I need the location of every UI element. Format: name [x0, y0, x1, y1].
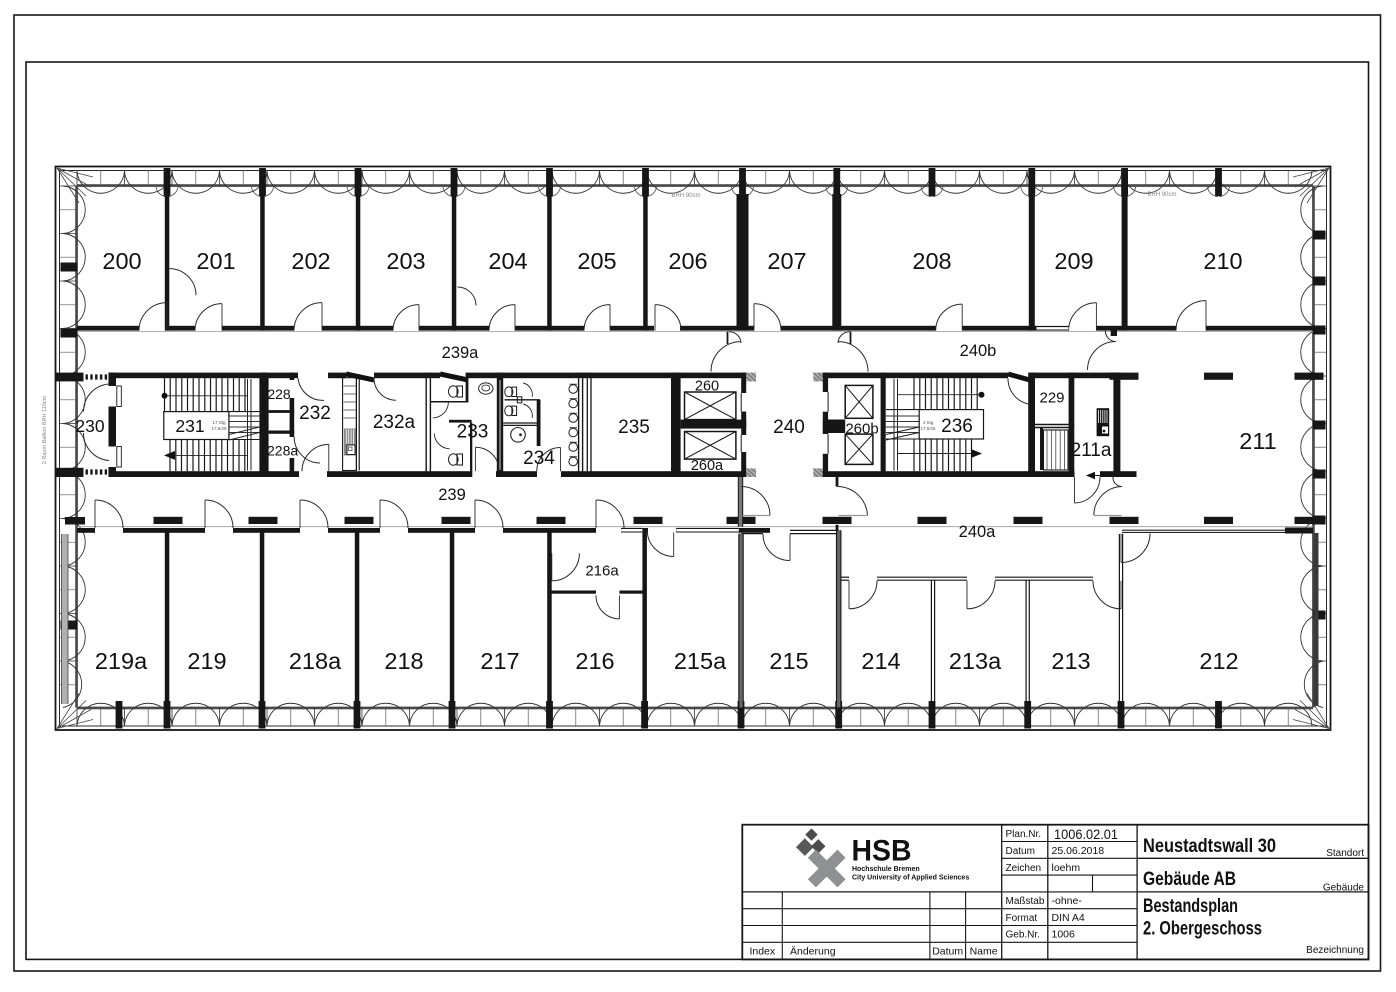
svg-text:212: 212: [1199, 648, 1238, 674]
svg-text:17,6/28: 17,6/28: [920, 426, 936, 431]
svg-text:Maßstab: Maßstab: [1006, 896, 1045, 907]
svg-text:260b: 260b: [845, 421, 878, 438]
svg-text:216a: 216a: [585, 563, 619, 580]
svg-text:BRH 90cm: BRH 90cm: [671, 193, 700, 199]
svg-text:206: 206: [668, 248, 707, 274]
svg-text:207: 207: [767, 248, 806, 274]
svg-text:loehm: loehm: [1052, 862, 1081, 874]
svg-text:219: 219: [187, 648, 226, 674]
svg-text:Neustadtswall 30: Neustadtswall 30: [1143, 835, 1276, 857]
svg-text:209: 209: [1054, 248, 1093, 274]
svg-text:1006.02.01: 1006.02.01: [1054, 826, 1118, 842]
svg-text:260a: 260a: [691, 458, 724, 474]
svg-text:228a: 228a: [267, 443, 298, 459]
svg-text:Änderung: Änderung: [790, 946, 836, 958]
svg-text:215: 215: [769, 648, 808, 674]
svg-text:Index: Index: [749, 946, 775, 958]
svg-text:Geb.Nr.: Geb.Nr.: [1006, 930, 1040, 941]
svg-text:239: 239: [438, 486, 466, 504]
svg-text:218: 218: [384, 648, 423, 674]
svg-text:211: 211: [1239, 428, 1276, 454]
svg-text:Bestandsplan: Bestandsplan: [1143, 895, 1238, 917]
svg-text:4 Stg: 4 Stg: [923, 420, 934, 425]
svg-text:Plan.Nr.: Plan.Nr.: [1006, 829, 1042, 840]
svg-text:213a: 213a: [949, 648, 1002, 674]
svg-text:203: 203: [386, 248, 425, 274]
svg-text:2.Raum Balkon BRH 110cm: 2.Raum Balkon BRH 110cm: [42, 395, 48, 464]
svg-text:214: 214: [861, 648, 900, 674]
svg-text:Gebäude: Gebäude: [1323, 883, 1365, 894]
svg-text:2. Obergeschoss: 2. Obergeschoss: [1143, 918, 1262, 940]
svg-text:234: 234: [523, 448, 555, 469]
svg-text:235: 235: [618, 417, 650, 438]
svg-text:BRH 90cm: BRH 90cm: [1147, 192, 1176, 198]
svg-text:Zeichen: Zeichen: [1006, 863, 1042, 874]
svg-text:260: 260: [695, 379, 719, 395]
svg-text:1006: 1006: [1052, 929, 1076, 941]
svg-text:Hochschule Bremen: Hochschule Bremen: [852, 866, 920, 873]
svg-text:204: 204: [488, 248, 527, 274]
svg-text:239a: 239a: [442, 344, 480, 362]
svg-text:236: 236: [941, 416, 973, 437]
svg-text:205: 205: [577, 248, 616, 274]
svg-text:200: 200: [102, 248, 141, 274]
svg-text:240a: 240a: [959, 523, 997, 541]
svg-text:216: 216: [575, 648, 614, 674]
svg-text:215a: 215a: [674, 648, 727, 674]
svg-text:Bezeichnung: Bezeichnung: [1306, 945, 1364, 956]
svg-text:202: 202: [291, 248, 330, 274]
svg-text:229: 229: [1039, 390, 1064, 407]
svg-text:210: 210: [1203, 248, 1242, 274]
svg-text:HSB: HSB: [852, 835, 912, 868]
svg-text:-ohne-: -ohne-: [1052, 895, 1083, 907]
svg-text:Gebäude AB: Gebäude AB: [1143, 868, 1236, 890]
svg-text:City University of Applied Sci: City University of Applied Sciences: [852, 874, 969, 881]
svg-text:Datum: Datum: [932, 946, 963, 958]
svg-text:231: 231: [175, 416, 204, 436]
svg-text:228: 228: [267, 386, 291, 402]
svg-text:25.06.2018: 25.06.2018: [1052, 845, 1105, 857]
svg-text:233: 233: [457, 422, 489, 443]
svg-text:Datum: Datum: [1006, 846, 1035, 857]
svg-text:208: 208: [912, 248, 951, 274]
svg-text:230: 230: [75, 416, 104, 436]
svg-text:Name: Name: [970, 946, 998, 958]
svg-text:17,6/28: 17,6/28: [211, 426, 227, 431]
svg-text:240: 240: [773, 417, 805, 438]
svg-text:201: 201: [196, 248, 235, 274]
svg-text:240b: 240b: [960, 342, 997, 360]
svg-text:17 Stg: 17 Stg: [212, 420, 226, 425]
svg-text:DIN A4: DIN A4: [1052, 912, 1085, 924]
svg-text:213: 213: [1051, 648, 1090, 674]
svg-text:219a: 219a: [95, 648, 148, 674]
svg-text:Format: Format: [1006, 913, 1038, 924]
svg-text:232: 232: [299, 403, 331, 424]
svg-text:217: 217: [480, 648, 519, 674]
svg-text:218a: 218a: [289, 648, 342, 674]
svg-text:Standort: Standort: [1326, 848, 1364, 859]
svg-text:232a: 232a: [373, 412, 416, 433]
svg-text:211a: 211a: [1071, 440, 1112, 461]
